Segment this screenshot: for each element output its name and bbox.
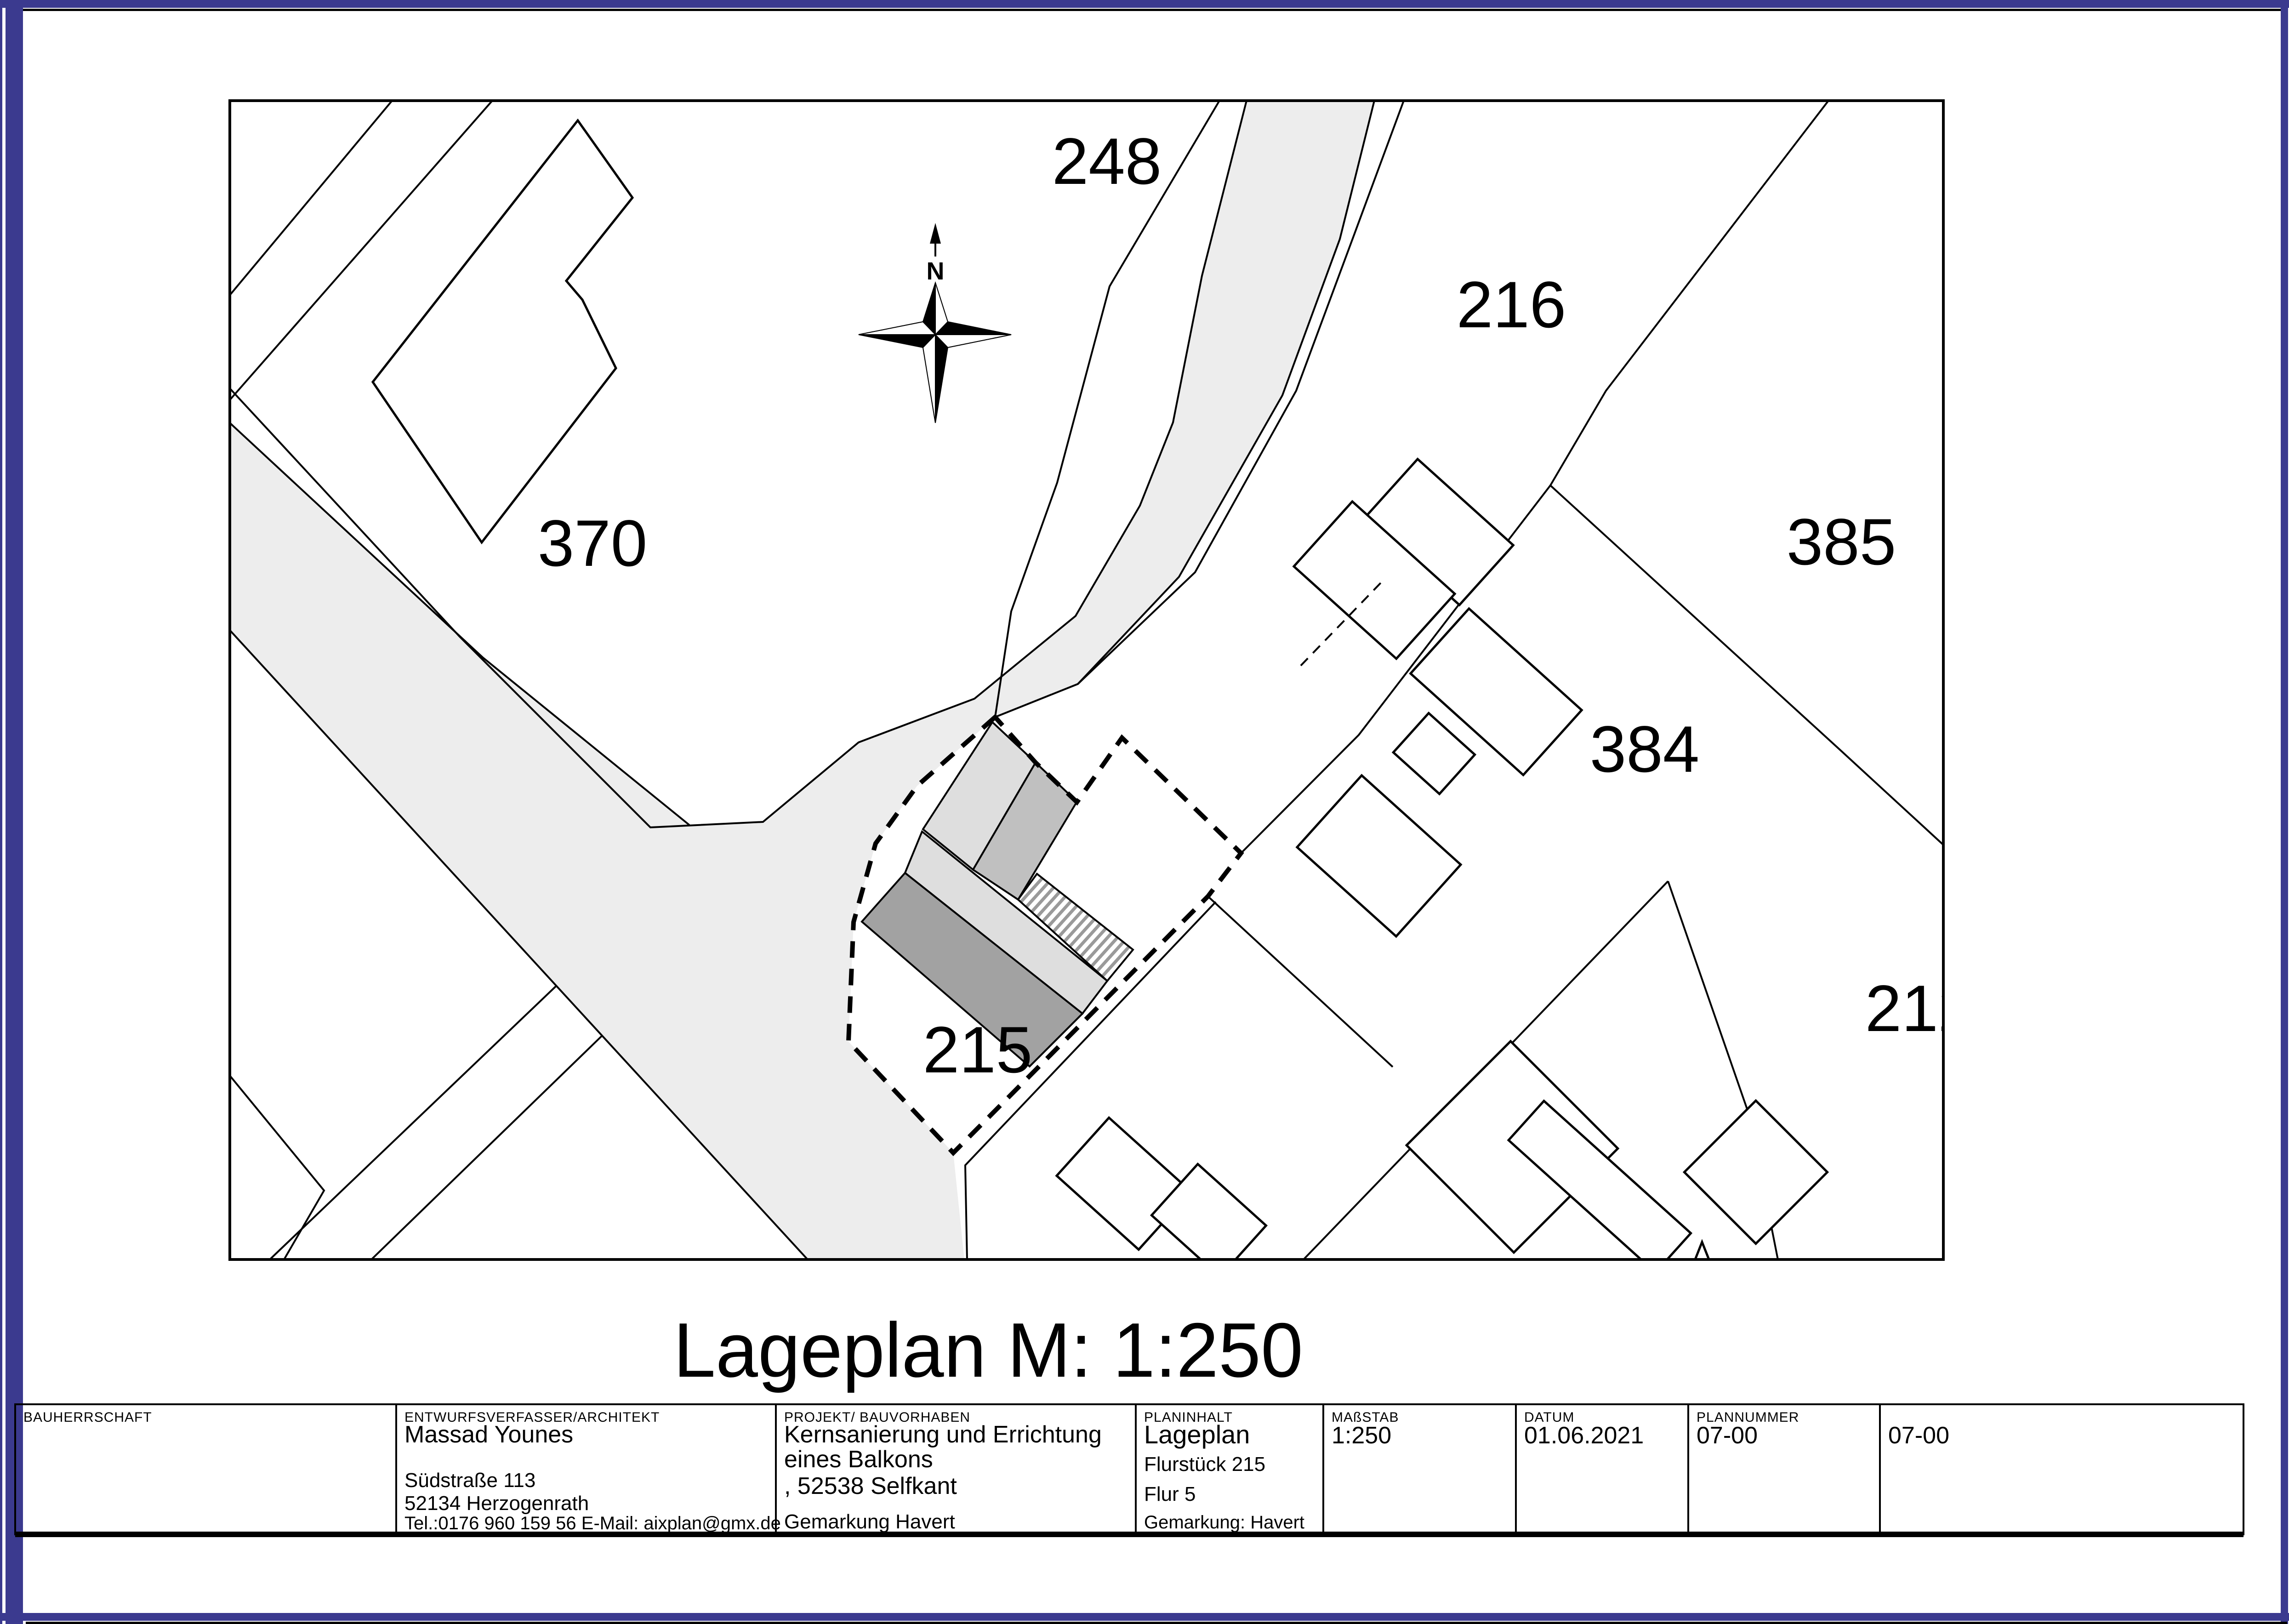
- border-outer-left-line: [0, 0, 2, 1624]
- title-block: BAUHERRSCHAFT ENTWURFSVERFASSER/ARCHITEK…: [15, 1404, 2243, 1534]
- site-plan-map: N 248 216 370 385 384 212 215: [230, 101, 1975, 1277]
- field-label-bauherrschaft: BAUHERRSCHAFT: [23, 1410, 152, 1425]
- border-left-band: [6, 0, 23, 1624]
- architect-contact: Tel.:0176 960 159 56 E-Mail: aixplan@gmx…: [404, 1513, 781, 1533]
- planinhalt-flur: Flur 5: [1144, 1483, 1196, 1505]
- parcel-label-248: 248: [1052, 125, 1162, 198]
- parcel-label-384: 384: [1590, 713, 1700, 786]
- map-title: Lageplan M: 1:250: [673, 1307, 1303, 1393]
- border-top-shadow-line: [23, 9, 2281, 11]
- north-label: N: [927, 257, 945, 285]
- parcel-label-385: 385: [1787, 506, 1896, 579]
- project-line-2: eines Balkons: [784, 1446, 933, 1473]
- border-top-band: [0, 0, 2289, 8]
- plan-sheet: N 248 216 370 385 384 212 215 Lageplan M…: [0, 0, 2289, 1624]
- project-line-1: Kernsanierung und Errichtung: [784, 1421, 1102, 1448]
- plan-number-value: 07-00: [1697, 1422, 1758, 1449]
- border-right-band: [2281, 0, 2288, 1624]
- border-bottom-shadow-line: [26, 1622, 2287, 1624]
- architect-street: Südstraße 113: [404, 1469, 535, 1492]
- project-gemarkung: Gemarkung Havert: [784, 1510, 955, 1533]
- planinhalt-main: Lageplan: [1144, 1420, 1250, 1449]
- border-bottom-band: [0, 1613, 2289, 1621]
- plan-number-value-2: 07-00: [1888, 1422, 1949, 1449]
- date-value: 01.06.2021: [1524, 1422, 1644, 1449]
- parcel-label-215: 215: [923, 1014, 1033, 1087]
- project-line-3: , 52538 Selfkant: [784, 1473, 957, 1499]
- parcel-label-212: 212: [1865, 972, 1975, 1045]
- parcel-label-216: 216: [1457, 268, 1566, 342]
- planinhalt-gemarkung: Gemarkung: Havert: [1144, 1512, 1304, 1533]
- architect-city: 52134 Herzogenrath: [404, 1492, 589, 1515]
- scale-value: 1:250: [1332, 1422, 1391, 1449]
- architect-name: Massad Younes: [404, 1421, 573, 1448]
- parcel-label-370: 370: [538, 507, 648, 580]
- planinhalt-flurstueck: Flurstück 215: [1144, 1453, 1265, 1476]
